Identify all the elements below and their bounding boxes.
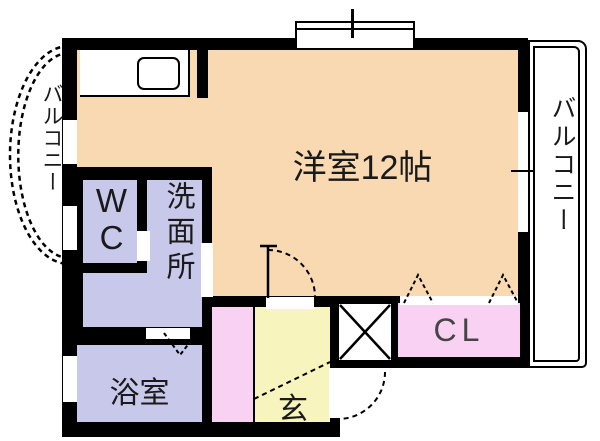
door-opening-washroom xyxy=(201,243,213,297)
room-bathroom-label: 浴室 xyxy=(86,368,193,412)
window-main-east xyxy=(518,112,528,232)
room-storage-strip xyxy=(212,307,253,422)
entrance-door-swing xyxy=(338,372,385,419)
bay-window-tick xyxy=(351,9,354,38)
balcony-left-label: バルコニー xyxy=(36,83,66,193)
room-closet-label: CL xyxy=(418,312,500,349)
window-toilet xyxy=(63,206,77,250)
kitchen-sink-icon xyxy=(137,57,180,90)
room-entrance-label: 玄 xyxy=(278,384,308,428)
room-toilet-label: WC xyxy=(92,182,130,256)
pipe-shaft xyxy=(337,302,393,362)
room-main-label: 洋室12帖 xyxy=(255,140,470,189)
room-washroom-label: 洗面所 xyxy=(157,181,199,286)
closet-opening xyxy=(400,296,518,305)
door-opening-toilet xyxy=(137,231,150,261)
door-opening-main xyxy=(266,297,314,309)
window-bathroom xyxy=(63,356,77,402)
bay-window xyxy=(295,21,415,50)
balcony-right-label: バルコニー xyxy=(544,95,580,235)
bay-window-inner-line xyxy=(297,28,413,30)
door-opening-bathroom xyxy=(146,328,190,339)
door-opening-entrance xyxy=(329,368,340,418)
wall-kitchen-stub xyxy=(197,50,208,98)
floor-plan: 洋室12帖 バルコニー バルコニー WC 洗面所 浴室 玄 CL xyxy=(0,0,600,441)
